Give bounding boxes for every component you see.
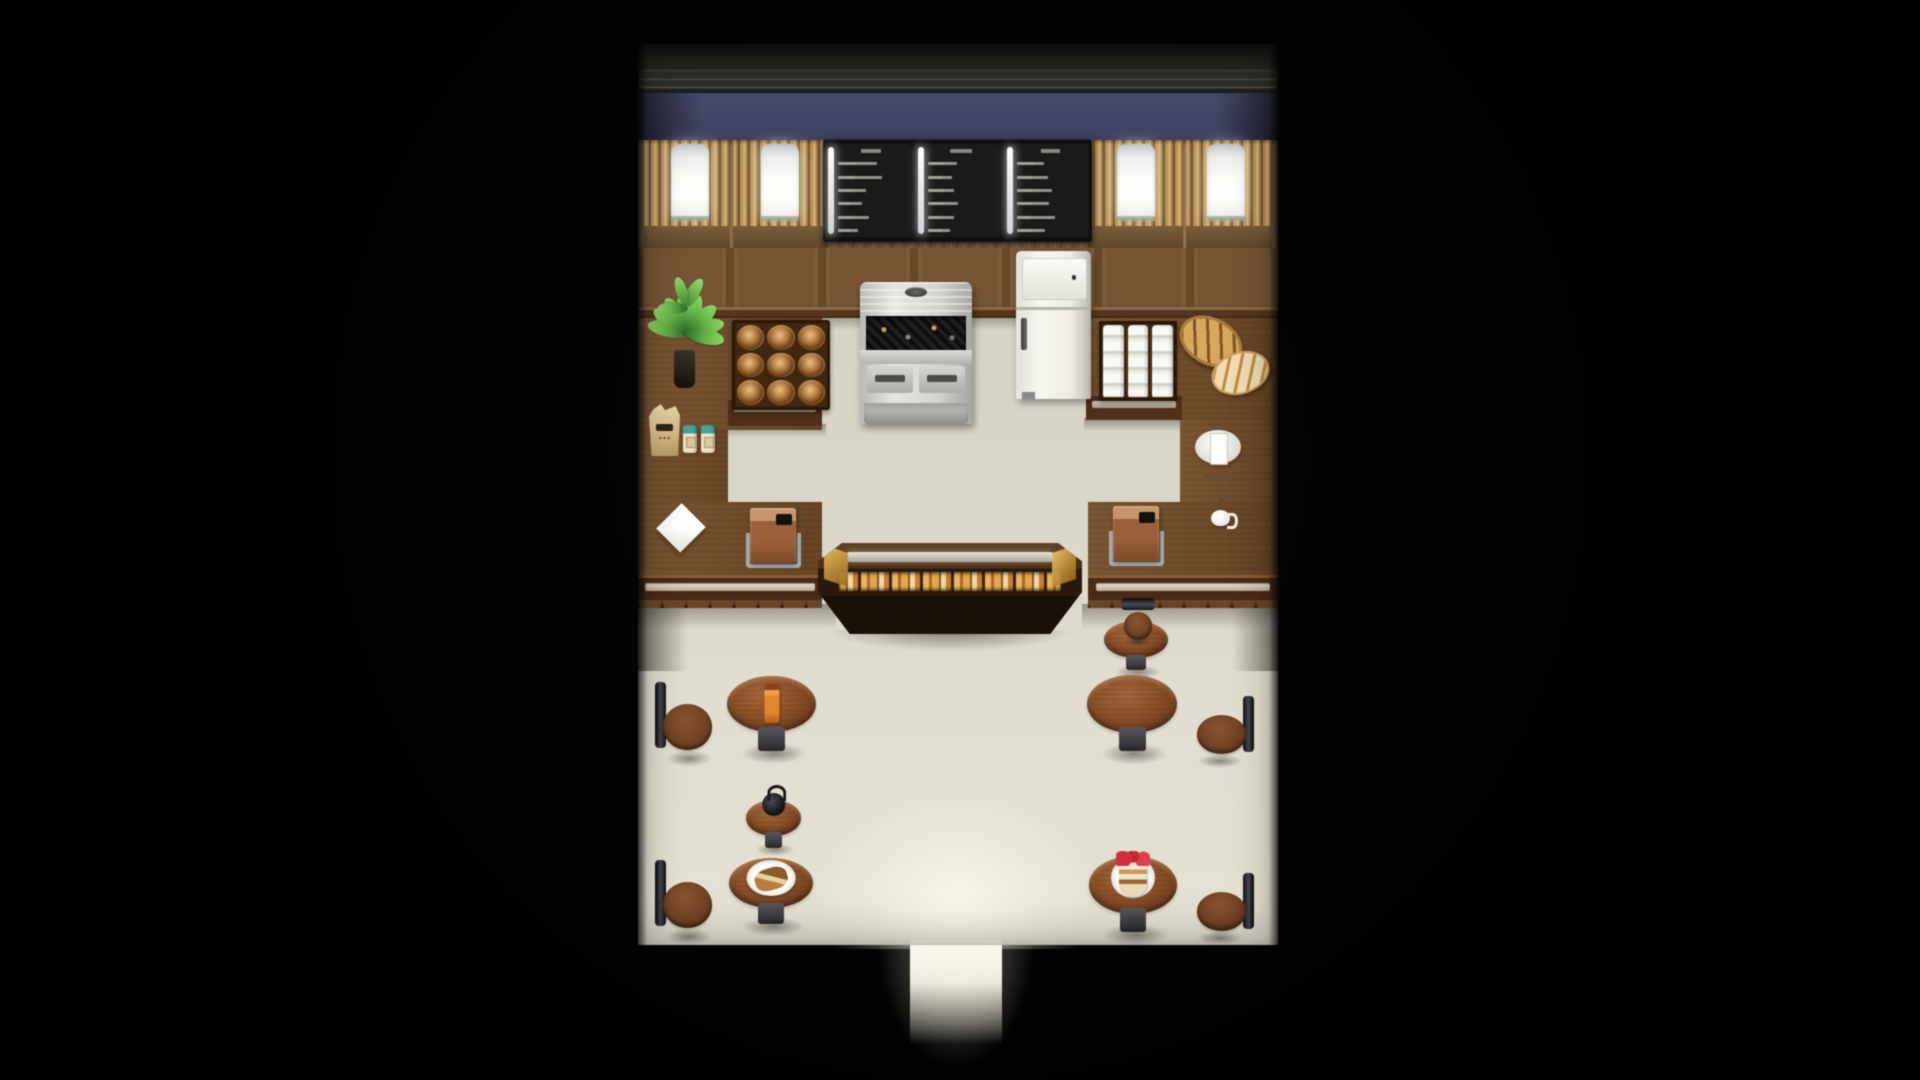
chair-shadow [1124,638,1152,646]
door-seam [1016,307,1091,310]
freezer-door [1022,258,1087,300]
fridge-feet [1022,392,1085,399]
stool-right-lower[interactable] [1197,873,1255,945]
kitchen-scale [1195,421,1241,479]
coffee-pot [760,784,788,819]
dining-table-cake[interactable] [1089,856,1177,946]
refrigerator[interactable] [1016,251,1091,399]
label-text [1205,475,1231,478]
napkin-diamond [657,503,706,552]
berries-icon [1116,851,1149,866]
dining-table-pie[interactable] [729,858,813,936]
chair-shadow [666,750,712,767]
chair-back [1243,696,1254,752]
pastry-display-rack[interactable] [732,320,830,410]
register-body [750,508,796,563]
plant-pot [674,350,695,388]
cake-slice [1111,854,1155,901]
dining-table-drink[interactable] [727,676,816,764]
cup-handle [1227,513,1238,529]
coffee-cup [1209,501,1241,531]
register-screen [1139,512,1155,523]
chair-shadow [1197,931,1243,945]
scale-card [1210,433,1228,465]
chair-seat [663,704,712,750]
sack-print [658,435,672,441]
oven-base [864,403,967,424]
oven-knob-icon [905,287,927,297]
table-shadow [741,743,807,764]
jar-icon [683,425,697,453]
table-shadow [755,843,796,856]
baking-oven[interactable] [860,282,972,424]
cash-register-right[interactable] [1111,506,1161,566]
chair-back [1243,873,1254,929]
stool-right-counter[interactable] [1118,598,1158,646]
chair-seat [1197,715,1246,754]
label-text [1208,422,1228,425]
wood-grain [1093,680,1170,727]
oven-frame [860,350,972,364]
bottle-column [1152,325,1173,397]
side-table-coffee-pot[interactable] [746,800,801,856]
stool-left-lower[interactable] [654,860,712,945]
bakery-map[interactable] [638,44,1278,1044]
bottle-column [1103,325,1124,397]
bread-loaves [1178,316,1270,394]
chair-seat [1124,612,1153,640]
chair-shadow [666,928,712,945]
cash-register-left[interactable] [748,508,798,568]
pie-plate [747,860,796,896]
sack-label [656,424,673,431]
orange-drink [764,684,779,723]
chair-back [655,860,666,926]
chair-shadow [1197,754,1243,768]
bread-grid [737,325,825,405]
oven-drawers [867,366,966,393]
stool-left-upper[interactable] [654,682,712,767]
chair-back [1121,598,1155,610]
table-shadow [1101,743,1168,765]
latch-icon [1072,275,1077,280]
chair-back [655,682,666,748]
table-shadow [1103,924,1168,946]
flour-sack [649,404,680,456]
fridge-handle [1021,318,1027,351]
table-shadow [742,917,804,936]
potted-plant [646,242,722,388]
chair-seat [663,882,712,928]
milk-bottle-trays [1099,321,1177,401]
table-top [1087,675,1177,733]
chair-seat [1197,892,1246,931]
spice-jars [683,425,715,453]
dining-table-right[interactable] [1087,675,1177,765]
bottle-column [1128,325,1149,397]
game-screen [0,0,1920,1080]
oven-hood [860,282,972,316]
stool-right-upper[interactable] [1197,696,1255,768]
napkin-cloth [657,502,709,556]
oven-window [866,316,967,350]
jar-icon [701,425,715,453]
register-screen [776,514,792,525]
register-body [1113,506,1159,561]
